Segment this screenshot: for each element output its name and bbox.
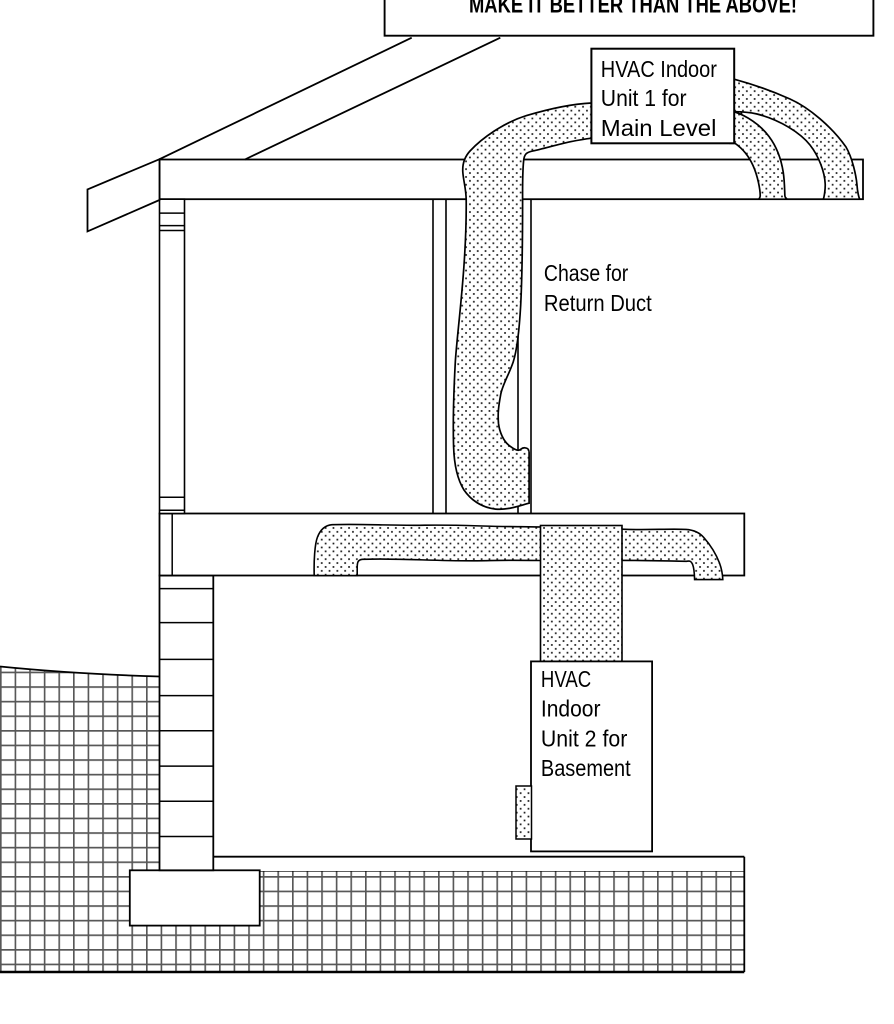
svg-text:Unit 1 for: Unit 1 for — [601, 85, 687, 111]
svg-text:Return Duct: Return Duct — [544, 290, 652, 316]
svg-text:Indoor: Indoor — [541, 696, 601, 722]
svg-text:MAKE IT BETTER THAN THE ABOVE!: MAKE IT BETTER THAN THE ABOVE! — [469, 0, 797, 18]
svg-text:Main Level: Main Level — [601, 115, 717, 141]
svg-text:HVAC: HVAC — [541, 666, 591, 692]
svg-text:Unit 2 for: Unit 2 for — [541, 725, 628, 751]
svg-text:Basement: Basement — [541, 755, 631, 781]
svg-text:Chase for: Chase for — [544, 260, 629, 286]
svg-text:HVAC Indoor: HVAC Indoor — [601, 56, 717, 82]
